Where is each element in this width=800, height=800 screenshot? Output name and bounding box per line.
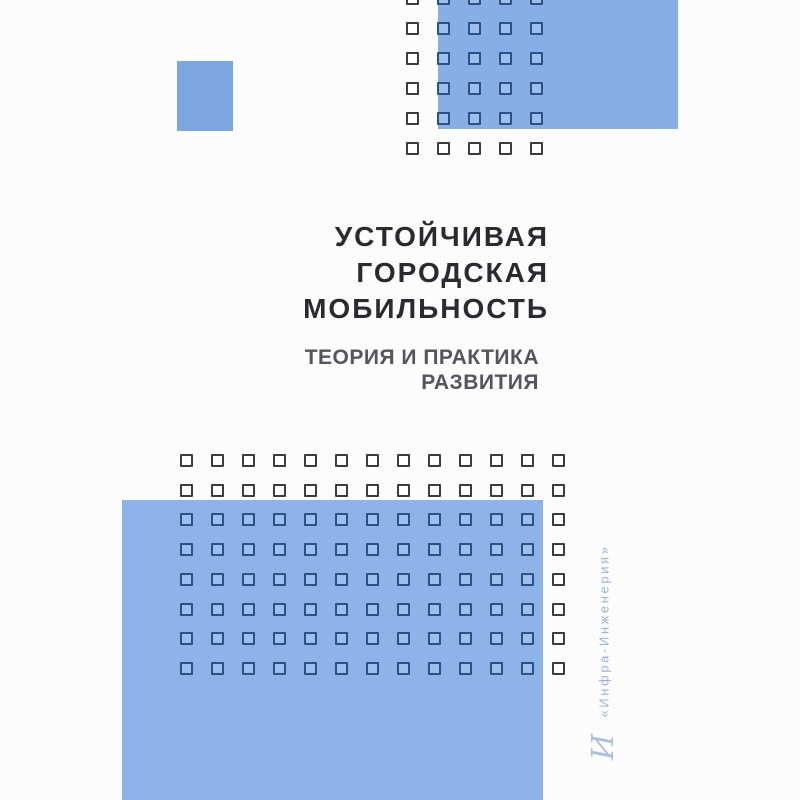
pattern-square xyxy=(459,484,472,497)
pattern-square xyxy=(552,513,565,526)
pattern-square xyxy=(304,454,317,467)
pattern-square xyxy=(552,603,565,616)
subtitle-line: РАЗВИТИЯ xyxy=(305,370,539,395)
book-subtitle: ТЕОРИЯ И ПРАКТИКА РАЗВИТИЯ xyxy=(305,345,539,395)
pattern-square xyxy=(211,484,224,497)
pattern-square xyxy=(397,484,410,497)
pattern-square xyxy=(304,484,317,497)
bottom-blue-rectangle xyxy=(122,500,543,800)
pattern-square xyxy=(490,454,503,467)
pattern-square xyxy=(552,484,565,497)
pattern-square xyxy=(490,484,503,497)
pattern-square xyxy=(521,454,534,467)
pattern-square xyxy=(552,454,565,467)
pattern-square xyxy=(406,112,419,125)
pattern-square xyxy=(437,142,450,155)
title-line: МОБИЛЬНОСТЬ xyxy=(303,291,549,327)
publisher-logo-icon: И xyxy=(589,734,619,760)
pattern-square xyxy=(552,543,565,556)
pattern-square xyxy=(468,142,481,155)
pattern-square xyxy=(428,454,441,467)
pattern-square xyxy=(406,142,419,155)
pattern-square xyxy=(406,0,419,5)
top-right-blue-rectangle xyxy=(438,0,678,129)
book-cover: УСТОЙЧИВАЯ ГОРОДСКАЯ МОБИЛЬНОСТЬ ТЕОРИЯ … xyxy=(0,0,800,800)
pattern-square xyxy=(552,573,565,586)
title-line: УСТОЙЧИВАЯ xyxy=(303,219,549,255)
pattern-square xyxy=(552,662,565,675)
pattern-square xyxy=(242,484,255,497)
publisher-name-vertical: «Инфра-Инженерия» xyxy=(597,544,612,717)
book-title: УСТОЙЧИВАЯ ГОРОДСКАЯ МОБИЛЬНОСТЬ xyxy=(303,219,549,327)
pattern-square xyxy=(406,52,419,65)
pattern-square xyxy=(180,454,193,467)
pattern-square xyxy=(366,454,379,467)
pattern-square xyxy=(530,142,543,155)
pattern-square xyxy=(499,142,512,155)
pattern-square xyxy=(428,484,441,497)
pattern-square xyxy=(521,484,534,497)
pattern-square xyxy=(273,484,286,497)
pattern-square xyxy=(459,454,472,467)
title-line: ГОРОДСКАЯ xyxy=(303,255,549,291)
pattern-square xyxy=(180,484,193,497)
pattern-square xyxy=(406,22,419,35)
pattern-square xyxy=(397,454,410,467)
pattern-square xyxy=(273,454,286,467)
pattern-square xyxy=(335,454,348,467)
pattern-square xyxy=(211,454,224,467)
pattern-square xyxy=(335,484,348,497)
top-left-blue-rectangle xyxy=(177,61,233,131)
pattern-square xyxy=(406,82,419,95)
pattern-square xyxy=(552,632,565,645)
pattern-square xyxy=(366,484,379,497)
subtitle-line: ТЕОРИЯ И ПРАКТИКА xyxy=(305,345,539,370)
pattern-square xyxy=(242,454,255,467)
